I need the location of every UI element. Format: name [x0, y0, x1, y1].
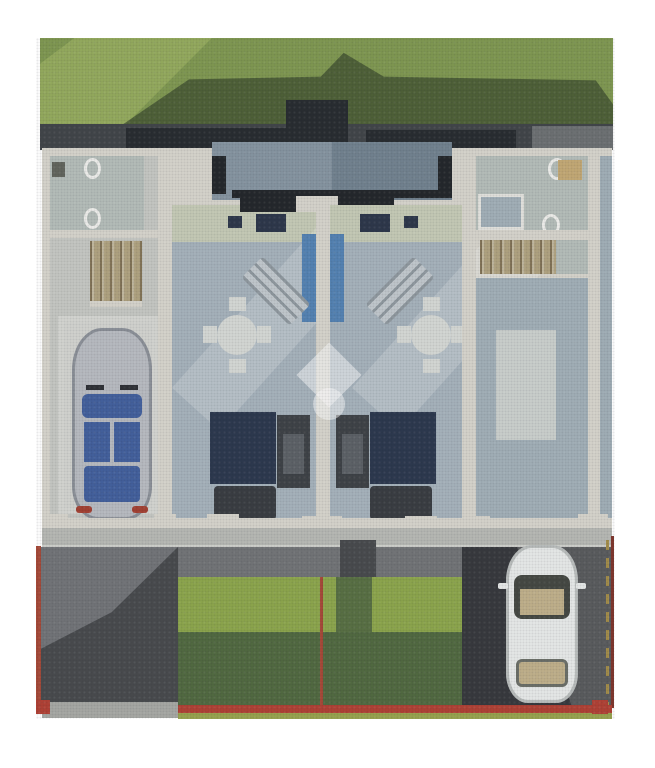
terrace-door-jamb-right: [438, 156, 452, 194]
white-car-mirror-left: [498, 583, 508, 589]
neighbour-unit-sliver: [600, 156, 612, 520]
left-bath-wall: [50, 230, 158, 238]
right-bath-wall: [476, 230, 588, 240]
right-chair-n: [423, 297, 440, 311]
watermark-dot-icon: [313, 388, 345, 420]
right-unit-wall: [462, 156, 476, 520]
right-hall-rug: [496, 330, 556, 440]
left-kitchen-sink: [228, 216, 242, 228]
left-sliding-door: [240, 196, 296, 212]
right-staircase: [480, 240, 556, 274]
bottom-grass-strip: [178, 713, 612, 719]
left-fence-post: [36, 700, 50, 714]
blue-car-wiper-right: [120, 385, 138, 390]
left-stairs-landing-wall: [90, 301, 142, 307]
right-fence-post: [592, 700, 608, 714]
left-chair-n: [229, 297, 246, 311]
right-sofa: [370, 486, 432, 520]
terrace-door-jamb-left: [212, 156, 226, 194]
right-rug: [370, 412, 436, 484]
bottom-left-sidewalk: [42, 702, 178, 718]
blue-car-taillight-left: [76, 506, 92, 513]
blue-car-taillight-right: [132, 506, 148, 513]
white-car-rear-window: [516, 659, 568, 687]
blue-car-roof-glass-right: [114, 422, 140, 462]
front-sidewalk: [42, 528, 612, 546]
right-shower: [478, 194, 524, 230]
white-car-dashboard: [520, 589, 564, 615]
left-tv-screen: [283, 434, 304, 474]
right-kitchen-hob: [360, 214, 390, 232]
left-staircase: [90, 241, 142, 301]
rear-pavement-light: [532, 126, 613, 150]
right-kitchen-sink: [404, 216, 418, 228]
left-fence: [36, 546, 41, 714]
left-rug: [210, 412, 276, 484]
blue-car-windshield: [82, 394, 142, 418]
lawn-divider-fence: [320, 577, 323, 710]
right-stairs-landing: [556, 240, 588, 274]
left-bidet-icon: [84, 208, 101, 229]
right-chair-s: [423, 359, 440, 373]
left-chair-e: [257, 326, 271, 343]
blue-car-wiper-left: [86, 385, 104, 390]
white-car-mirror-right: [576, 583, 586, 589]
blue-car-rear-window: [84, 466, 140, 502]
left-chair-w: [203, 326, 217, 343]
left-chair-s: [229, 359, 246, 373]
right-tv-screen: [342, 434, 363, 474]
mid-asphalt-shadow: [340, 540, 376, 580]
right-bath-shelf: [558, 160, 582, 180]
far-right-party-wall: [588, 148, 600, 528]
blue-car-roof-glass-left: [84, 422, 110, 462]
right-chair-w: [397, 326, 411, 343]
left-bath-cabinet: [52, 162, 65, 177]
rendered-plan: [36, 38, 615, 719]
left-toilet-icon: [84, 158, 101, 179]
right-dining-table: [411, 315, 451, 355]
left-dining-table: [217, 315, 257, 355]
right-fence: [611, 536, 614, 708]
white-car-roof: [516, 621, 568, 657]
roof-chimney-shadow: [286, 100, 348, 148]
right-fence-dashed: [606, 540, 609, 705]
left-party-wall: [158, 156, 172, 520]
mid-asphalt: [178, 547, 462, 579]
right-tall-cabinet: [330, 234, 344, 322]
front-lawn-notch: [336, 577, 372, 632]
scan-page: [0, 0, 655, 768]
left-kitchen-hob: [256, 214, 286, 232]
